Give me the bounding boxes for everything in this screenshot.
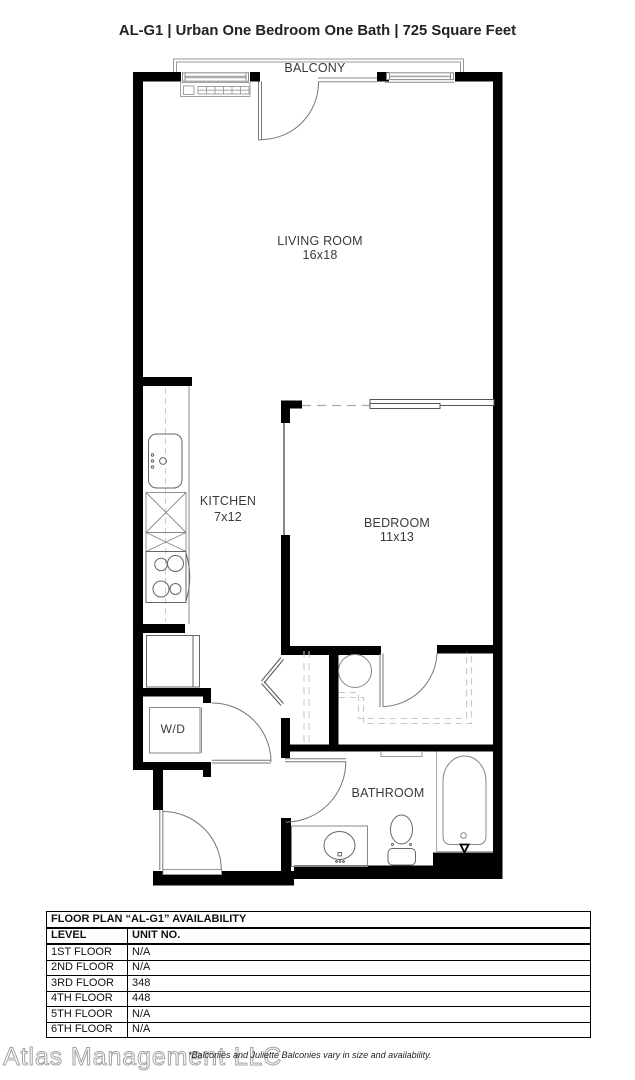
svg-text:16x18: 16x18: [302, 248, 337, 262]
svg-text:BATHROOM: BATHROOM: [352, 786, 425, 800]
svg-text:BEDROOM: BEDROOM: [364, 516, 430, 530]
svg-text:KITCHEN: KITCHEN: [200, 494, 256, 508]
svg-text:W/D: W/D: [161, 722, 186, 736]
svg-text:LIVING ROOM: LIVING ROOM: [277, 234, 363, 248]
svg-text:7x12: 7x12: [214, 510, 242, 524]
svg-text:11x13: 11x13: [380, 530, 414, 544]
